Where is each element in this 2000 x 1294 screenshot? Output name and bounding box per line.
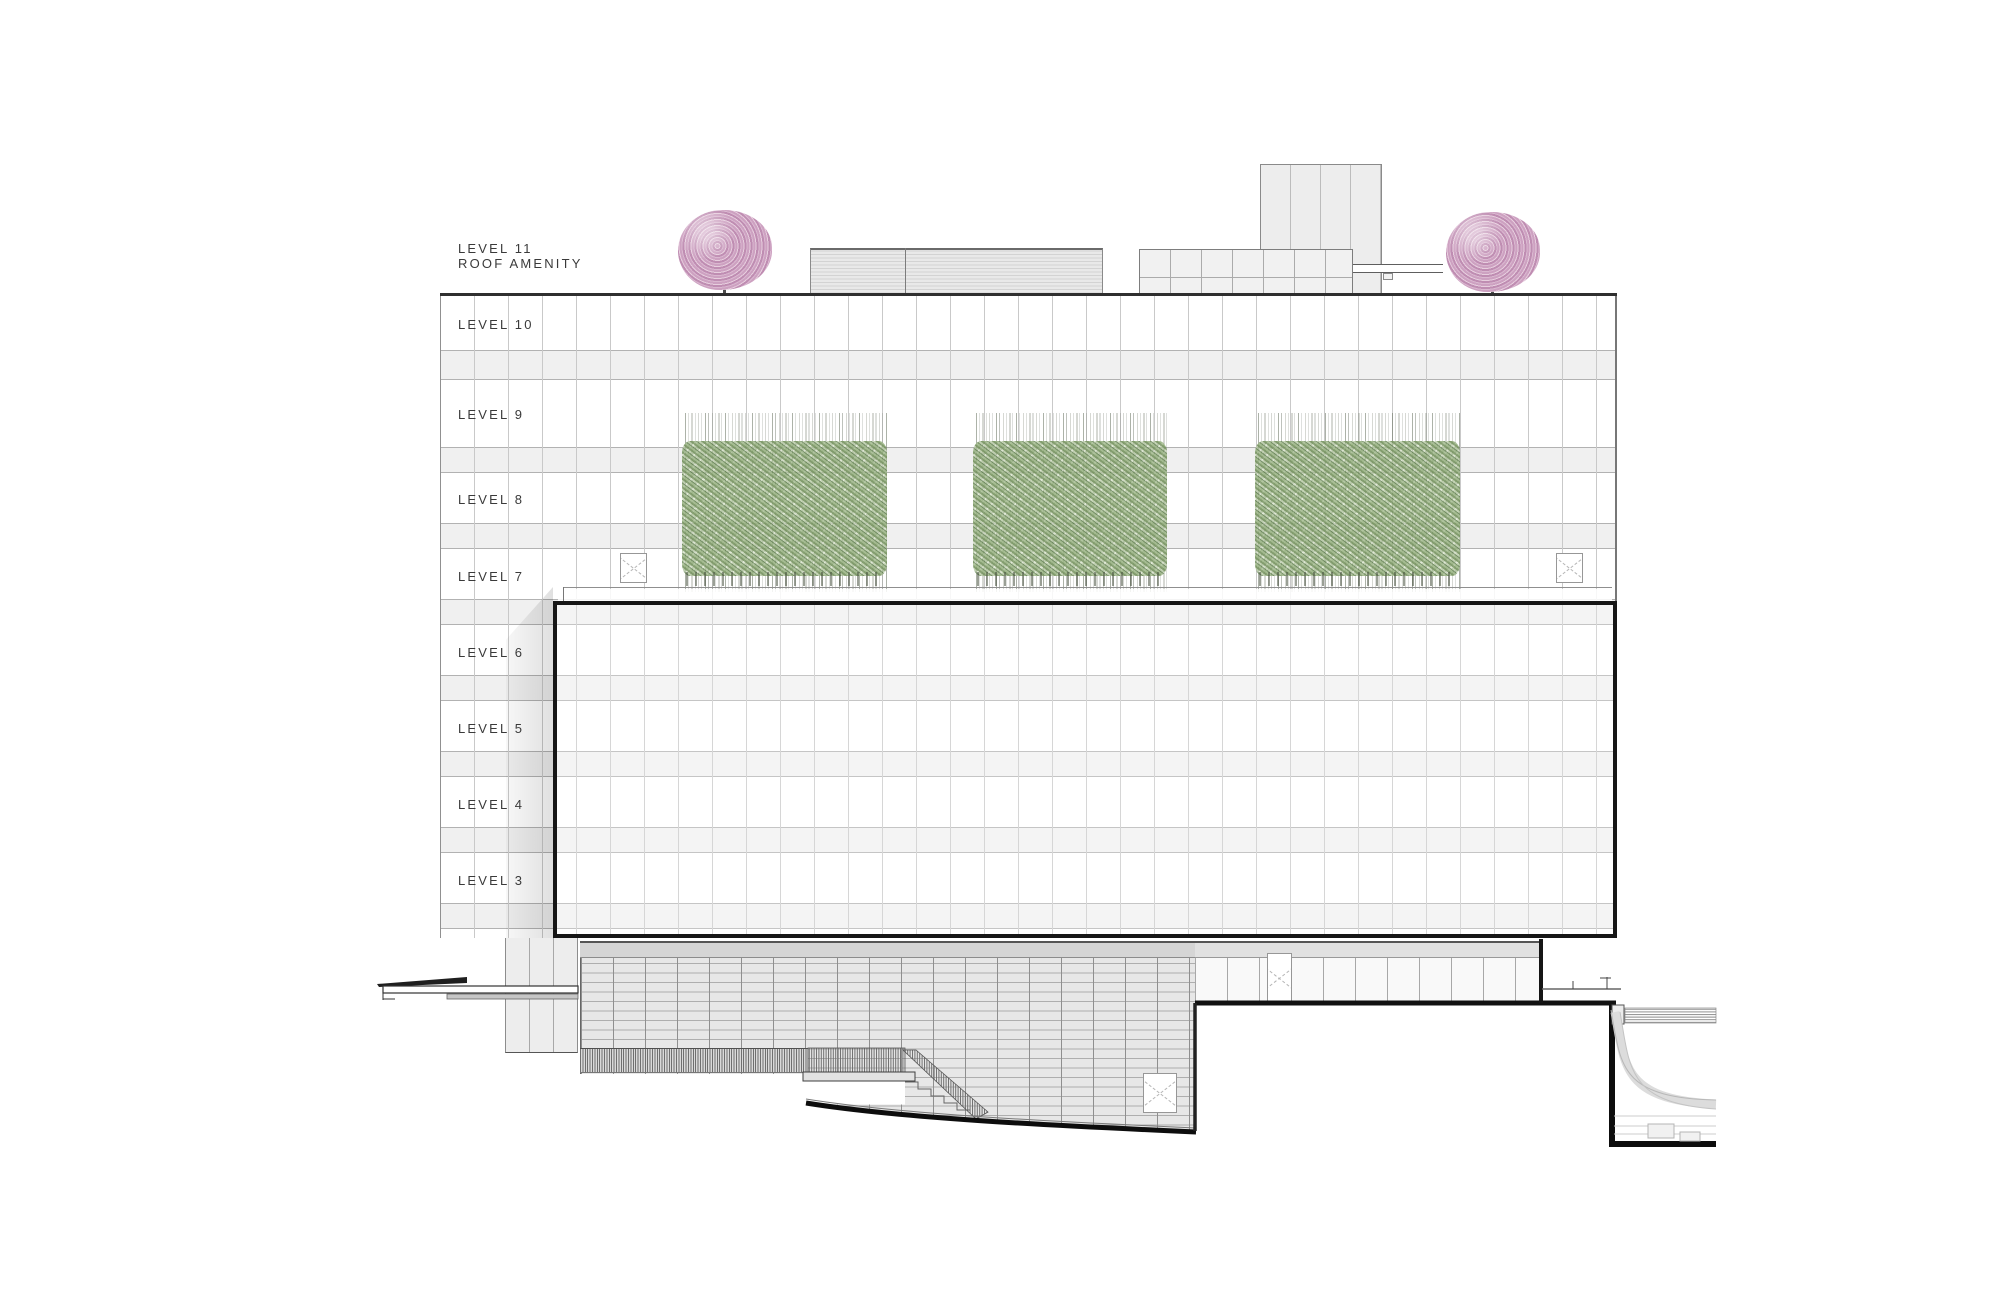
level-label: LEVEL 3 (458, 873, 524, 888)
roof-label-line2: ROOF AMENITY (458, 256, 583, 271)
bamboo-foliage (973, 441, 1167, 576)
building-left-edge (440, 296, 441, 938)
roof-tree-canopy-right (1446, 212, 1540, 292)
ramp-pit-wall (1609, 1005, 1716, 1144)
lower-volume-outline (553, 601, 1617, 938)
ground-floor-spandrel (1195, 941, 1541, 958)
bamboo-foliage (682, 441, 887, 576)
roof-edge-line (440, 293, 1617, 296)
bamboo-base (1259, 572, 1456, 586)
level-label: LEVEL 5 (458, 721, 524, 736)
canopy-roof-wedge (377, 977, 467, 987)
podium-fascia (580, 941, 1195, 958)
canopy-edge-detail (383, 993, 395, 1000)
pit-equipment (1648, 1124, 1674, 1138)
pit-curb (1612, 1005, 1624, 1024)
bamboo-base (686, 572, 883, 586)
level-label: LEVEL 9 (458, 407, 524, 422)
podium-elevator-door (1143, 1073, 1177, 1113)
elevation-drawing: LEVEL 11 ROOF AMENITY LEVEL 10LEVEL 9LEV… (0, 0, 2000, 1294)
sidewalk-hatch (1625, 1008, 1716, 1023)
level-label: LEVEL 10 (458, 317, 534, 332)
ramp-curve-edge (1611, 1010, 1716, 1100)
building-right-edge (1615, 296, 1617, 602)
roof-louver-divider-line (905, 248, 906, 297)
terrace-parapet-line (563, 587, 1612, 588)
level-label: LEVEL 6 (458, 645, 524, 660)
bamboo-planting (1255, 413, 1460, 592)
ramp-curve-edge (1620, 1012, 1716, 1109)
bamboo-foliage (1255, 441, 1460, 576)
terrace-parapet (558, 589, 1612, 601)
roof-amenity-label: LEVEL 11 ROOF AMENITY (458, 241, 583, 271)
terrace-door (1556, 553, 1583, 583)
ground-floor-door (1267, 953, 1292, 1003)
roof-label-line1: LEVEL 11 (458, 241, 583, 256)
ramp-curve-band (1615, 1012, 1716, 1104)
roof-louvered-enclosure (810, 248, 1103, 297)
podium-louver-strip (580, 1048, 808, 1073)
bamboo-planting (682, 413, 887, 592)
roof-paneled-enclosure (1139, 249, 1353, 297)
roof-guardrail-bracket (1383, 273, 1393, 280)
roof-tree-canopy-left (678, 210, 772, 290)
terrace-parapet-step (563, 587, 564, 601)
level-label: LEVEL 8 (458, 492, 524, 507)
bamboo-base (977, 572, 1163, 586)
entry-pier (505, 938, 578, 1053)
terrace-door (620, 553, 647, 583)
bamboo-planting (973, 413, 1167, 592)
pit-equipment (1680, 1132, 1700, 1141)
level-label: LEVEL 7 (458, 569, 524, 584)
podium-ground-cut (580, 1074, 807, 1194)
level-label: LEVEL 4 (458, 797, 524, 812)
roof-guardrail (1353, 264, 1443, 273)
